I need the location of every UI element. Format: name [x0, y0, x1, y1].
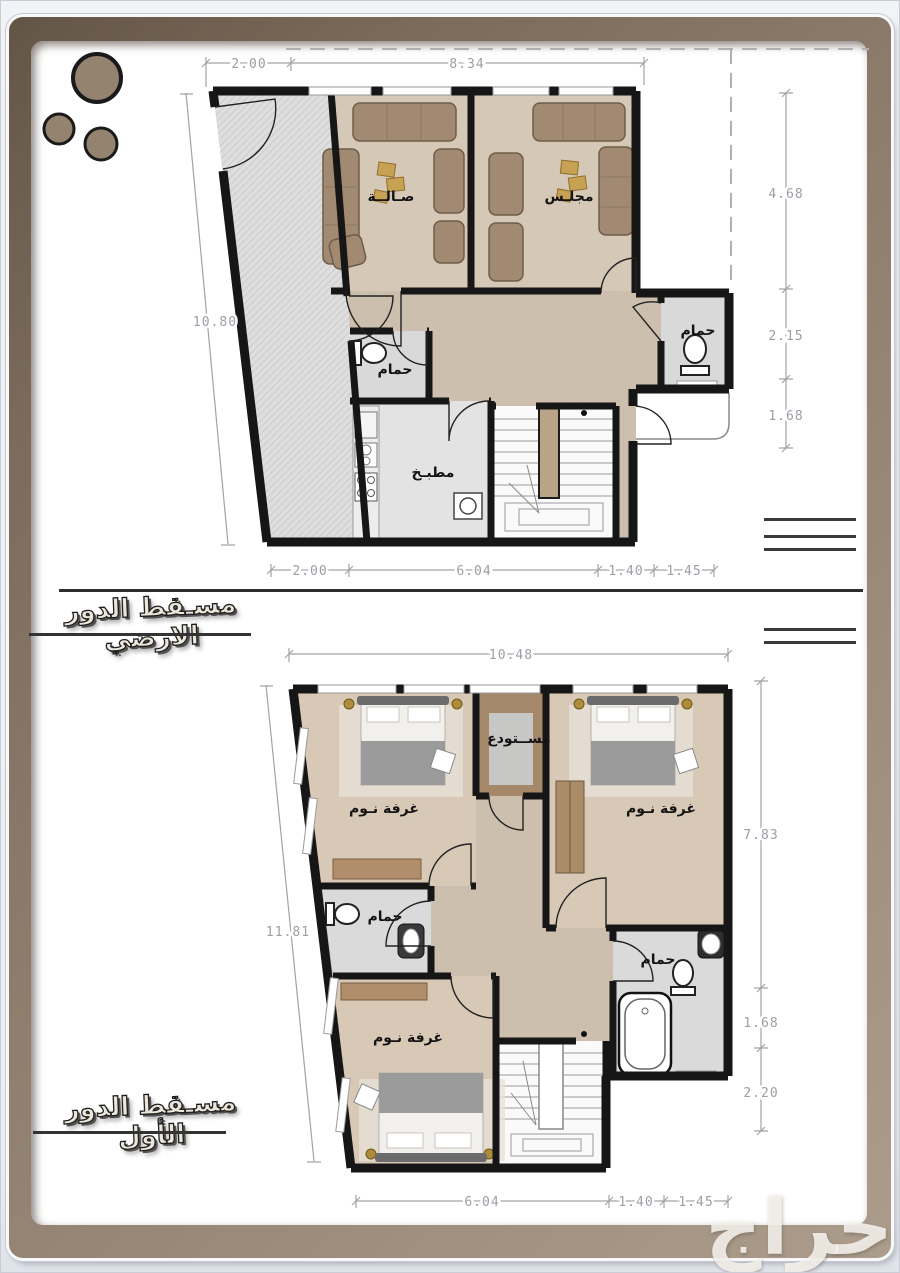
- dresser-icon: [341, 983, 427, 1000]
- lamp-icon: [366, 1149, 376, 1159]
- sofa-icon: [489, 153, 523, 215]
- svg-text:2.15: 2.15: [768, 329, 803, 344]
- window: [383, 87, 451, 95]
- lamp-icon: [682, 699, 692, 709]
- room-label-storage: مســتودع: [487, 731, 551, 747]
- svg-text:6.04: 6.04: [456, 564, 491, 579]
- bathtub-icon: [619, 993, 671, 1075]
- sofa-icon: [489, 223, 523, 281]
- window: [559, 87, 613, 95]
- watermark-logo: حراج: [593, 1189, 893, 1267]
- room-label-bedroom: غرفة نـوم: [626, 801, 696, 817]
- page-canvas: 2.00 8.34 4.68 2.15 1.68 10.80 2.00 6.04…: [0, 0, 900, 1273]
- setback-line: [636, 393, 729, 439]
- room-label-living: صـالــة: [368, 189, 415, 205]
- room-label-majlis: مجلـس: [544, 189, 593, 205]
- svg-text:2.00: 2.00: [231, 57, 266, 72]
- svg-text:10.48: 10.48: [489, 648, 533, 663]
- svg-text:6.04: 6.04: [464, 1195, 499, 1210]
- svg-text:2.00: 2.00: [292, 564, 327, 579]
- svg-text:10.80: 10.80: [193, 315, 237, 330]
- window: [573, 685, 633, 693]
- window: [493, 87, 549, 95]
- window: [318, 685, 396, 693]
- svg-text:11.81: 11.81: [266, 925, 310, 940]
- title-block-line: [764, 535, 856, 538]
- title-block-line: [764, 518, 856, 521]
- toilet-icon: [673, 960, 693, 986]
- window: [309, 87, 371, 95]
- window: [470, 685, 540, 693]
- dresser-icon: [333, 859, 421, 879]
- svg-text:7.83: 7.83: [743, 828, 778, 843]
- title-block-line: [764, 628, 856, 631]
- armchair-icon: [434, 221, 464, 263]
- svg-text:2.20: 2.20: [743, 1086, 778, 1101]
- svg-text:4.68: 4.68: [768, 187, 803, 202]
- first-floor-title: مسـقط الدور الأول: [45, 1086, 257, 1155]
- circle: [73, 54, 121, 102]
- first-floor-plan: 10.48 7.83 1.68 2.20 11.81 6.04 1.40 1.4…: [171, 641, 871, 1216]
- ground-floor-plan: 2.00 8.34 4.68 2.15 1.68 10.80 2.00 6.04…: [171, 41, 871, 586]
- toilet-icon: [326, 903, 334, 925]
- room-label-bedroom: غرفة نـوم: [349, 801, 419, 817]
- sofa-icon: [533, 103, 625, 141]
- room-label-kitchen: مطبـخ: [412, 465, 455, 481]
- title-block-line: [764, 548, 856, 551]
- sofa-icon: [599, 147, 633, 235]
- room-label-bath: حمام: [641, 952, 676, 968]
- window: [404, 685, 464, 693]
- svg-text:1.68: 1.68: [743, 1016, 778, 1031]
- sofa-icon: [434, 149, 464, 213]
- room-label-bedroom: غرفة نـوم: [373, 1030, 443, 1046]
- svg-text:1.68: 1.68: [768, 409, 803, 424]
- title-underline: [33, 1131, 226, 1134]
- circle: [85, 128, 117, 160]
- title-underline: [29, 633, 251, 636]
- sofa-icon: [353, 103, 456, 141]
- lamp-icon: [574, 699, 584, 709]
- window: [647, 685, 697, 693]
- room-label-bath: حمام: [368, 909, 403, 925]
- lamp-icon: [452, 699, 462, 709]
- svg-text:1.45: 1.45: [666, 564, 701, 579]
- washer-icon: [454, 493, 482, 519]
- svg-text:1.40: 1.40: [608, 564, 643, 579]
- lamp-icon: [344, 699, 354, 709]
- room-label-bath: حمام: [681, 323, 716, 339]
- decorative-circles: [36, 46, 136, 166]
- room-label-bath: حمام: [378, 362, 413, 378]
- svg-text:8.34: 8.34: [449, 57, 484, 72]
- circle: [44, 114, 74, 144]
